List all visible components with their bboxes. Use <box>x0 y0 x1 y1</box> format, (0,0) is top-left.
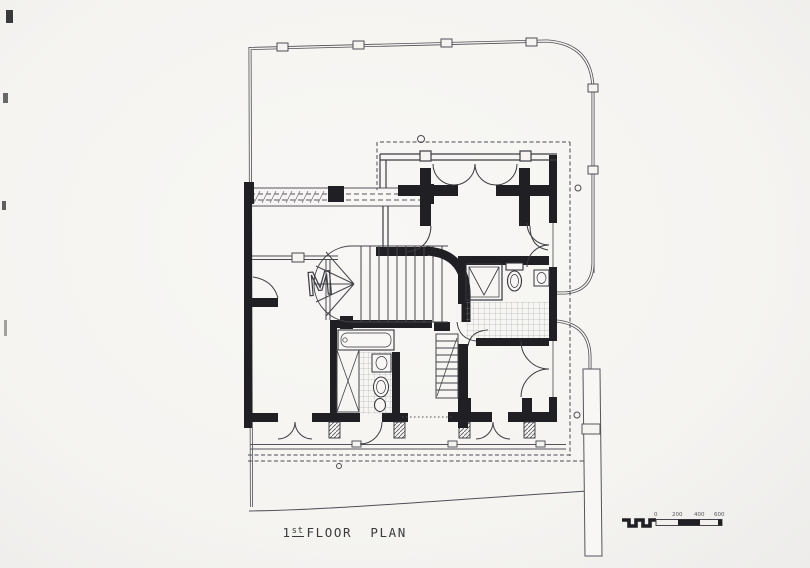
closet-shaft <box>337 350 359 412</box>
sink <box>534 270 549 286</box>
title-ordinal: st <box>292 526 304 537</box>
interior-walls <box>252 168 550 428</box>
scale-label-0: 0 <box>654 512 658 518</box>
scale-bar-zigzag <box>622 520 656 526</box>
bidet <box>375 399 386 412</box>
main-staircase <box>314 246 466 322</box>
tile-floor <box>466 302 549 338</box>
title-words: FLOOR PLAN <box>307 525 407 540</box>
bathroom-lower <box>337 330 394 414</box>
bathtub <box>338 330 394 350</box>
drawing-title: 1stFLOOR PLAN <box>246 510 407 555</box>
bathroom-upper <box>466 263 549 338</box>
scale-label-400: 400 <box>694 512 705 518</box>
shower <box>466 264 502 300</box>
basement-staircase <box>436 334 458 398</box>
toilet <box>506 263 523 291</box>
terrace-edge <box>250 441 566 449</box>
floor-plan-drawing: M 0 200 400 600 <box>0 0 810 568</box>
ramp-strip <box>582 369 602 556</box>
toilet <box>374 377 389 397</box>
scale-label-600: 600 <box>714 512 725 518</box>
scanned-floor-plan-sheet: M 0 200 400 600 1stFLOOR PLAN <box>0 0 810 568</box>
porch-columns <box>329 422 535 438</box>
title-number: 1 <box>283 525 292 540</box>
pergola-column <box>328 186 344 202</box>
scale-label-200: 200 <box>672 512 683 518</box>
sink <box>372 354 391 372</box>
material-break-symbol: M <box>304 264 335 304</box>
scale-bar: 0 200 400 600 <box>622 512 725 526</box>
